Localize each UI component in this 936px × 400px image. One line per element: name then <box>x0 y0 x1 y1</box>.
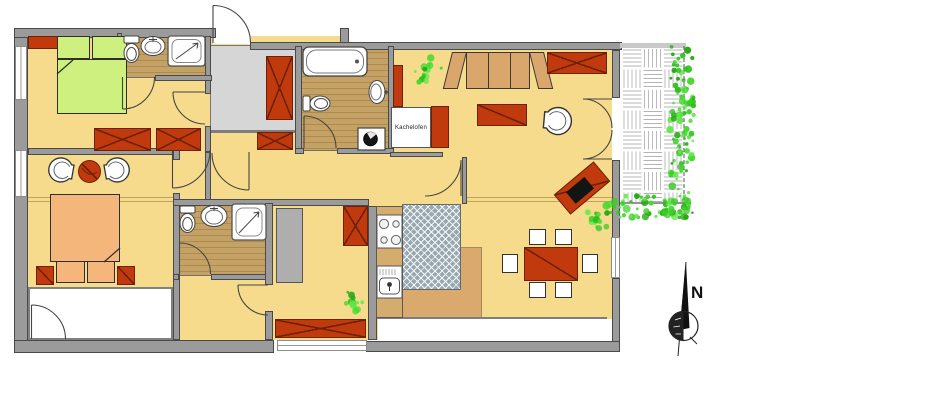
tiled-stove: Kachelofen <box>391 107 431 148</box>
wall <box>250 42 622 50</box>
bathroom3-floor <box>180 205 265 275</box>
wardrobe <box>94 128 151 151</box>
dining-chair <box>529 282 546 298</box>
stove-shelf <box>393 65 403 107</box>
terrace-decking <box>623 49 683 202</box>
dining-table <box>524 247 578 281</box>
wall <box>173 150 180 160</box>
hall-wardrobe <box>266 56 293 120</box>
wall <box>337 148 394 154</box>
window <box>277 340 367 351</box>
wardrobe <box>275 319 366 338</box>
outside-patch <box>213 36 251 44</box>
bathroom2-floor <box>302 46 388 150</box>
stove-side <box>431 106 449 148</box>
sofa <box>466 52 530 89</box>
dining-chair <box>555 229 572 245</box>
bed-pillow <box>56 261 85 283</box>
terrace-top-edge <box>620 43 686 48</box>
kitchen-cabinet <box>343 206 368 246</box>
bed-pillow <box>87 261 115 283</box>
wall <box>378 317 607 319</box>
bathroom1-floor <box>120 36 208 77</box>
kitchen-counter <box>376 206 403 318</box>
beam-line <box>466 201 612 202</box>
dining-chair <box>502 254 518 273</box>
sofa-seam <box>488 53 489 88</box>
wall <box>265 311 273 340</box>
wall <box>205 152 211 205</box>
window <box>15 150 27 197</box>
wall <box>265 203 273 285</box>
sideboard <box>547 52 607 74</box>
wall <box>173 274 179 280</box>
window <box>15 46 27 100</box>
sofa-seam <box>510 53 511 88</box>
compass-north-label: N <box>691 283 703 303</box>
wall <box>462 157 467 204</box>
terrace-door-opening <box>612 98 620 160</box>
wall <box>612 50 620 98</box>
double-bed-orange <box>50 194 120 262</box>
bed-pillow <box>92 36 127 59</box>
loggia-box <box>28 287 173 340</box>
wall <box>211 274 268 280</box>
dining-chair <box>555 282 572 298</box>
dining-chair <box>582 254 598 273</box>
nightstand <box>36 266 54 285</box>
window <box>611 237 620 278</box>
built-in-closet <box>276 208 303 283</box>
bed-pillow <box>57 36 90 59</box>
hall-wardrobe <box>257 132 293 150</box>
wall <box>14 340 274 353</box>
wall <box>295 46 302 150</box>
nightstand <box>117 266 135 285</box>
wall <box>366 341 620 352</box>
double-bed-green <box>57 59 127 114</box>
floor-plan: Kachelofen N <box>0 0 936 400</box>
wall <box>612 160 620 238</box>
lower-terrace-strip <box>378 319 612 341</box>
wall <box>295 148 304 154</box>
wall <box>205 36 211 94</box>
wall <box>155 75 212 81</box>
wall <box>173 193 180 340</box>
wall <box>390 152 443 157</box>
wardrobe <box>156 128 201 151</box>
coffee-table <box>477 104 527 126</box>
round-table <box>78 160 101 183</box>
compass <box>669 262 698 356</box>
dining-chair <box>529 229 546 245</box>
kitchen-rug <box>402 204 461 290</box>
